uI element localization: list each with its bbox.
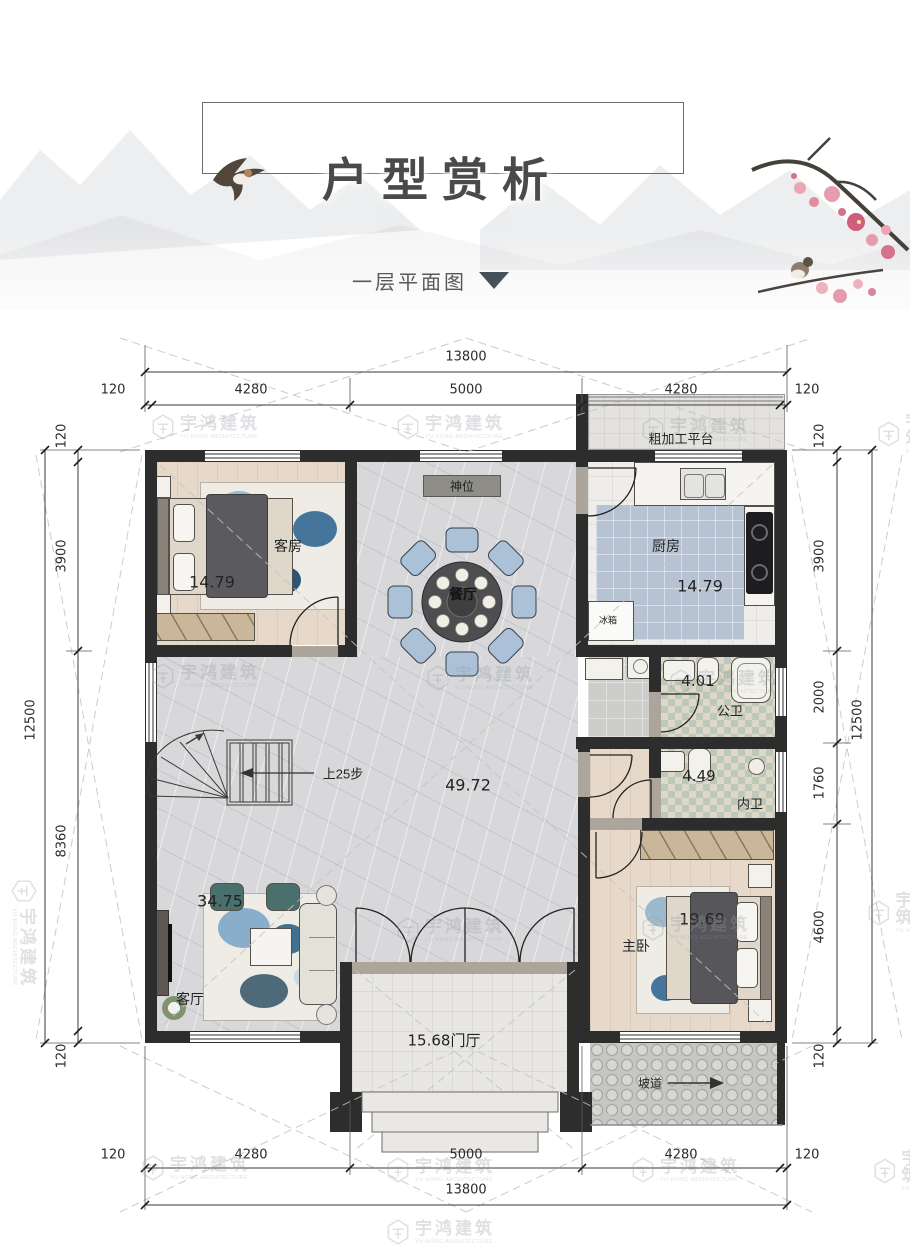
brand-watermark: 宇鸿建筑YU HONG ARCHITECTURE [385,1156,495,1184]
guest-room-area: 14.79 [189,573,235,592]
dim-bottom-0: 120 [101,1148,126,1163]
dim-right-1: 3900 [813,539,828,572]
brand-logo-icon [630,1156,656,1184]
brand-watermark: 宇鸿建筑YU HONG ARCHITECTURE [866,892,910,934]
brand-logo-icon [425,664,451,692]
dim-top-2: 5000 [449,383,482,398]
foyer-name: 门厅 [450,1033,480,1050]
dim-bottom-4: 120 [795,1148,820,1163]
dim-left-0: 120 [55,424,70,449]
brand-logo-icon [668,668,694,696]
dim-top-total: 13800 [445,350,486,365]
page: 户型赏析 一层平面图 [0,0,910,1246]
shrine-label: 神位 [450,478,474,495]
dim-right-0: 120 [813,424,828,449]
brand-logo-icon [150,413,176,441]
brand-logo-icon [140,1154,166,1182]
ramp-arrow [668,1077,724,1089]
brand-watermark: 宇鸿建筑YU HONG ARCHITECTURE [150,413,260,441]
ramp-label: 坡道 [638,1075,662,1092]
dim-left-2: 8360 [55,824,70,857]
brand-logo-icon [640,416,666,444]
dim-top-3: 4280 [664,383,697,398]
brand-logo-icon [385,1218,411,1246]
dim-left-1: 3900 [55,539,70,572]
living-area: 34.75 [197,892,243,911]
platform-railing [588,397,783,401]
inner-bath-label: 内卫 [737,794,763,813]
public-bath-label: 公卫 [717,701,743,720]
foyer-area: 15.68 [408,1032,451,1050]
stairs-label: 上25步 [323,764,363,783]
stairs-arrow [240,768,314,778]
dim-left-total: 12500 [24,699,39,740]
dim-bottom-total: 13800 [445,1183,486,1198]
inner-bath-area: 4.49 [682,767,715,785]
brand-watermark: 宇鸿建筑YU HONG ARCHITECTURE [668,668,778,696]
brand-logo-icon [640,914,666,942]
dim-right-4: 4600 [813,910,828,943]
plan-linework [0,0,910,1246]
brand-watermark: 宇鸿建筑YU HONG ARCHITECTURE [150,662,260,690]
brand-watermark: 宇鸿建筑YU HONG ARCHITECTURE [872,1150,910,1192]
brand-watermark: 宇鸿建筑YU HONG ARCHITECTURE [395,413,505,441]
brand-logo-icon [150,662,176,690]
porch-steps [362,1092,558,1152]
stairs [148,730,292,805]
brand-watermark: 宇鸿建筑YU HONG ARCHITECTURE [425,664,535,692]
fridge-label: 冰箱 [599,614,617,627]
dim-right-total: 12500 [851,699,866,740]
hall-area: 49.72 [445,776,491,795]
dining-label: 餐厅 [449,584,477,604]
dim-left-3: 120 [55,1044,70,1069]
brand-logo-icon [395,916,421,944]
dim-top-4: 120 [795,383,820,398]
brand-watermark: 宇鸿建筑YU HONG ARCHITECTURE [640,416,750,444]
door-swings [290,468,699,962]
brand-logo-icon [866,899,892,927]
brand-logo-icon [385,1156,411,1184]
brand-watermark: 宇鸿建筑YU HONG ARCHITECTURE [630,1156,740,1184]
kitchen-area: 14.79 [677,577,723,596]
dim-right-2: 2000 [813,680,828,713]
brand-watermark: 宇鸿建筑YU HONG ARCHITECTURE [10,878,38,988]
brand-watermark: 宇鸿建筑YU HONG ARCHITECTURE [876,413,910,455]
brand-watermark: 宇鸿建筑YU HONG ARCHITECTURE [395,916,505,944]
brand-watermark: 宇鸿建筑YU HONG ARCHITECTURE [385,1218,495,1246]
brand-logo-icon [872,1157,898,1185]
brand-watermark: 宇鸿建筑YU HONG ARCHITECTURE [640,914,750,942]
guest-room-label: 客房 [274,536,302,556]
dim-top-0: 120 [101,383,126,398]
dim-top-1: 4280 [234,383,267,398]
living-label: 客厅 [176,989,204,1009]
brand-logo-icon [395,413,421,441]
dim-right-3: 1760 [813,766,828,799]
brand-logo-icon [10,878,38,904]
brand-logo-icon [876,420,902,448]
dim-right-5: 120 [813,1044,828,1069]
kitchen-label: 厨房 [652,536,680,556]
brand-watermark: 宇鸿建筑YU HONG ARCHITECTURE [140,1154,250,1182]
foyer-label: 15.68门厅 [408,1030,481,1051]
